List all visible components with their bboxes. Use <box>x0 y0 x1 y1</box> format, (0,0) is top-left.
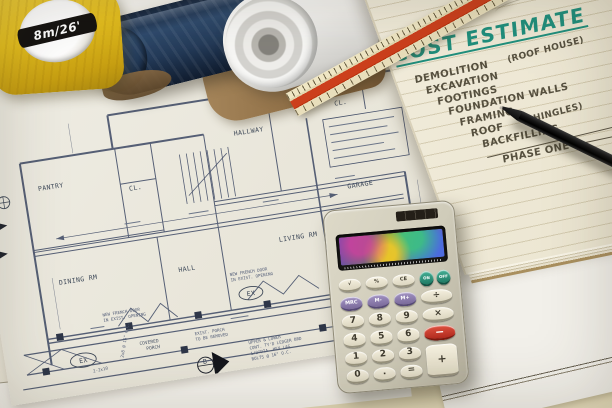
ex-label: EX <box>79 356 89 365</box>
digit-9-key[interactable]: 9 <box>395 309 418 325</box>
ledger-note: UPPER & LOWER CONT. TY'D LEDGER BRD 1/2"… <box>248 330 305 361</box>
tape-measure: 8m/26' <box>0 0 125 96</box>
room-living: LIVING RM <box>278 230 318 244</box>
power-keys: ON OFF <box>419 269 451 287</box>
plus-key[interactable]: + <box>425 343 459 378</box>
digit-3-key[interactable]: 3 <box>398 346 421 362</box>
memory-recall-key[interactable]: MRC <box>340 296 363 312</box>
minus-key[interactable]: − <box>424 324 456 341</box>
digit-6-key[interactable]: 6 <box>397 328 420 344</box>
section-letter: B <box>202 357 208 366</box>
digit-1-key[interactable]: 1 <box>345 350 368 366</box>
digit-4-key[interactable]: 4 <box>343 332 366 348</box>
room-closet2: CL. <box>334 98 348 108</box>
multiply-key[interactable]: × <box>422 306 454 323</box>
margin-symbols <box>0 196 18 261</box>
solar-panel <box>396 208 439 222</box>
ex-label: EX <box>246 289 256 298</box>
digit-8-key[interactable]: 8 <box>368 312 391 328</box>
digit-0-key[interactable]: 0 <box>346 368 369 384</box>
garage-note-box <box>323 107 410 167</box>
digit-7-key[interactable]: 7 <box>341 314 364 330</box>
digit-2-key[interactable]: 2 <box>372 348 395 364</box>
room-hallway: HALLWAY <box>233 125 264 138</box>
room-dining: DINING RM <box>58 273 98 287</box>
calculator-keypad: √ % CE ON OFF MRC M- M+ ÷ 7 8 9 × 4 5 6 … <box>338 269 459 384</box>
beam-label: 2-2x10 <box>93 365 109 373</box>
sqrt-key[interactable]: √ <box>338 278 361 294</box>
tape-measure-face: 8m/26' <box>13 0 101 70</box>
tape-measure-label: 8m/26' <box>16 12 98 49</box>
room-closet: CL. <box>128 183 142 193</box>
equals-key[interactable]: = <box>400 364 423 380</box>
clear-entry-key[interactable]: CE <box>392 273 415 289</box>
memory-plus-key[interactable]: M+ <box>394 291 417 307</box>
photo-scene: EX EX B PANTRY CL. CL. DINING RM HALL LI… <box>0 0 612 408</box>
memory-minus-key[interactable]: M- <box>367 294 390 310</box>
room-pantry: PANTRY <box>37 181 64 193</box>
percent-key[interactable]: % <box>365 275 388 291</box>
calculator: √ % CE ON OFF MRC M- M+ ÷ 7 8 9 × 4 5 6 … <box>322 200 470 395</box>
room-hall: HALL <box>178 264 196 275</box>
on-key[interactable]: ON <box>419 271 434 287</box>
divide-key[interactable]: ÷ <box>421 288 453 305</box>
digit-5-key[interactable]: 5 <box>370 330 393 346</box>
calculator-display <box>335 225 448 270</box>
tape-length-text: 8m/26' <box>32 18 83 43</box>
decimal-key[interactable]: . <box>373 366 396 382</box>
off-key[interactable]: OFF <box>436 269 451 285</box>
